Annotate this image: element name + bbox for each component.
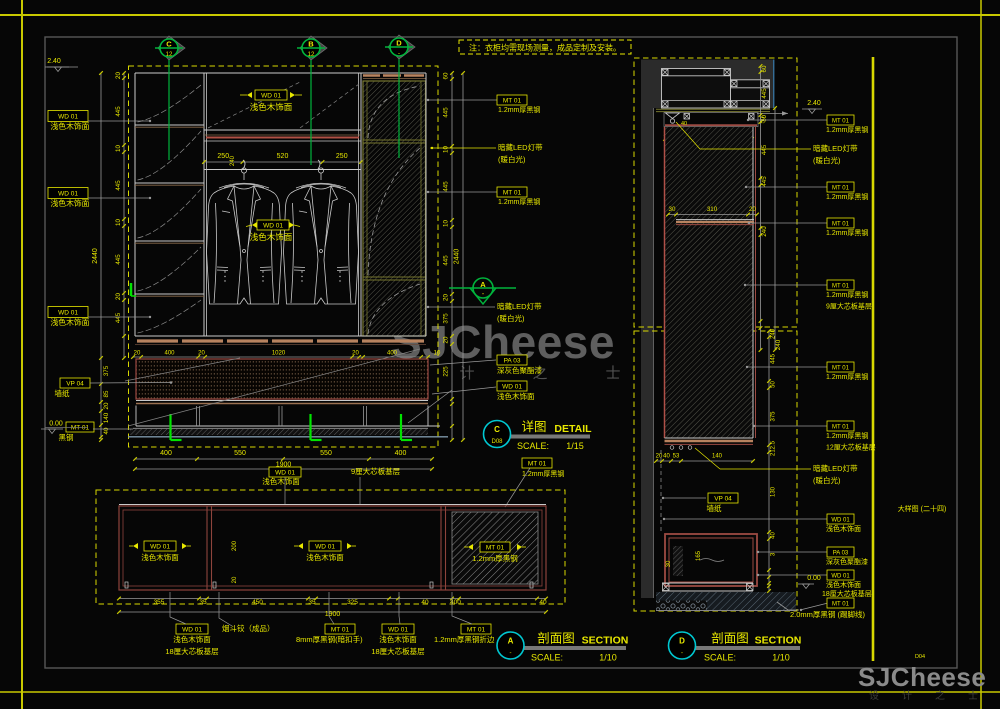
svg-text:240: 240 (761, 226, 768, 237)
svg-text:A: A (480, 280, 486, 289)
svg-text:WD 01: WD 01 (388, 626, 408, 633)
svg-text:WD 01: WD 01 (502, 383, 522, 390)
svg-text:D: D (396, 39, 402, 48)
svg-text:DETAIL: DETAIL (554, 423, 592, 435)
svg-text:MT 01: MT 01 (832, 601, 850, 607)
svg-text:1.2mm厚黑钢: 1.2mm厚黑钢 (498, 105, 540, 114)
svg-text:50: 50 (771, 381, 777, 388)
svg-text:1.2mm厚黑钢折边: 1.2mm厚黑钢折边 (434, 634, 495, 644)
svg-text:20: 20 (352, 351, 359, 357)
svg-text:400: 400 (164, 351, 175, 357)
svg-text:1/10: 1/10 (599, 653, 617, 663)
svg-text:550: 550 (234, 450, 246, 457)
svg-text:20: 20 (115, 293, 122, 300)
svg-text:1.2mm厚黑钢: 1.2mm厚黑钢 (826, 372, 868, 381)
svg-text:200: 200 (232, 540, 238, 551)
svg-text:墙纸: 墙纸 (707, 503, 722, 513)
svg-text:暗藏LED灯带: 暗藏LED灯带 (498, 142, 543, 152)
svg-text:325: 325 (347, 599, 358, 606)
svg-text:355: 355 (154, 599, 165, 606)
svg-text:1.2mm厚黑钢: 1.2mm厚黑钢 (826, 192, 868, 201)
svg-text:1.2mm厚黑钢: 1.2mm厚黑钢 (826, 228, 868, 237)
svg-text:VP 04: VP 04 (714, 495, 732, 502)
svg-text:130: 130 (771, 486, 777, 497)
svg-text:MT 01: MT 01 (832, 424, 850, 430)
svg-text:黑钢: 黑钢 (59, 432, 74, 442)
svg-text:520: 520 (277, 153, 289, 160)
svg-text:WD 01: WD 01 (263, 222, 283, 229)
svg-text:WD 01: WD 01 (261, 92, 281, 99)
svg-text:SCALE:: SCALE: (531, 653, 563, 663)
svg-text:40: 40 (421, 599, 429, 606)
svg-text:450: 450 (252, 599, 263, 606)
svg-text:-: - (681, 651, 683, 657)
svg-text:SJCheese: SJCheese (858, 662, 986, 692)
svg-text:1/15: 1/15 (566, 441, 584, 451)
svg-text:WD 01: WD 01 (150, 543, 170, 550)
svg-text:18厘大芯板基层: 18厘大芯板基层 (165, 646, 219, 656)
svg-text:18厘大芯板基层: 18厘大芯板基层 (371, 646, 425, 656)
svg-text:WD 01: WD 01 (58, 190, 78, 197)
svg-text:60: 60 (761, 65, 768, 72)
svg-text:详图: 详图 (521, 419, 546, 434)
svg-text:暗藏LED灯带: 暗藏LED灯带 (813, 463, 858, 473)
svg-text:375: 375 (443, 313, 450, 324)
svg-text:SECTION: SECTION (755, 635, 802, 647)
svg-text:212.5: 212.5 (771, 440, 777, 456)
svg-text:VP 04: VP 04 (66, 380, 84, 387)
svg-text:445: 445 (115, 180, 122, 191)
svg-text:设: 设 (869, 690, 879, 702)
svg-text:1900: 1900 (325, 611, 341, 618)
svg-text:30: 30 (669, 206, 676, 213)
svg-text:240: 240 (771, 328, 777, 339)
svg-text:310: 310 (707, 206, 718, 213)
svg-text:B: B (308, 40, 314, 49)
svg-text:20: 20 (656, 454, 663, 460)
svg-text:计: 计 (459, 365, 474, 382)
svg-text:2440: 2440 (454, 249, 461, 265)
svg-text:MT 01: MT 01 (467, 626, 486, 633)
svg-text:400: 400 (160, 450, 172, 457)
svg-text:20: 20 (232, 576, 238, 583)
svg-text:35: 35 (199, 599, 207, 606)
svg-text:SCALE:: SCALE: (704, 653, 736, 663)
svg-text:士: 士 (605, 365, 620, 382)
svg-text:12厘大芯板基层: 12厘大芯板基层 (826, 443, 876, 452)
svg-text:士: 士 (968, 689, 978, 702)
svg-text:浅色木饰面: 浅色木饰面 (497, 391, 535, 401)
svg-text:浅色木饰面: 浅色木饰面 (379, 634, 417, 644)
svg-text:计: 计 (902, 689, 912, 702)
svg-text:MT 01: MT 01 (331, 626, 350, 633)
svg-text:9厘大芯板基层: 9厘大芯板基层 (826, 302, 872, 311)
svg-text:20: 20 (103, 402, 110, 409)
svg-text:墙纸: 墙纸 (55, 388, 70, 398)
svg-text:浅色木饰面: 浅色木饰面 (250, 232, 293, 242)
svg-text:40: 40 (771, 532, 777, 539)
svg-text:浅色木饰面: 浅色木饰面 (250, 102, 293, 112)
svg-text:445: 445 (115, 254, 122, 265)
svg-text:250: 250 (336, 153, 348, 160)
svg-text:D04: D04 (915, 654, 925, 660)
svg-text:445: 445 (443, 181, 450, 192)
svg-text:WD 01: WD 01 (831, 573, 850, 579)
svg-text:1.2mm厚黑钢: 1.2mm厚黑钢 (826, 431, 868, 440)
svg-text:MT 01: MT 01 (832, 118, 850, 124)
svg-text:剖面图: 剖面图 (711, 632, 749, 646)
svg-text:40: 40 (539, 599, 547, 606)
svg-text:445: 445 (443, 107, 450, 118)
svg-text:20: 20 (198, 351, 205, 357)
svg-text:240: 240 (775, 339, 782, 350)
svg-text:剖面图: 剖面图 (537, 632, 575, 646)
svg-text:375: 375 (771, 411, 777, 422)
svg-text:暗藏LED灯带: 暗藏LED灯带 (813, 143, 858, 153)
svg-text:1020: 1020 (272, 351, 286, 357)
svg-text:之: 之 (935, 689, 945, 702)
svg-text:浅色木饰面: 浅色木饰面 (173, 634, 211, 644)
svg-text:(暖白光): (暖白光) (813, 475, 841, 485)
svg-text:PA 03: PA 03 (504, 357, 521, 364)
svg-text:浅色木饰面: 浅色木饰面 (826, 524, 861, 533)
svg-text:10: 10 (443, 146, 450, 153)
svg-text:60: 60 (443, 72, 450, 79)
svg-text:445: 445 (771, 353, 777, 364)
svg-text:445: 445 (443, 255, 450, 266)
svg-text:30: 30 (666, 560, 672, 567)
svg-text:WD 01: WD 01 (58, 113, 78, 120)
svg-text:浅色木饰面: 浅色木饰面 (51, 198, 90, 208)
svg-text:445: 445 (115, 312, 122, 323)
svg-text:85: 85 (103, 390, 110, 397)
svg-text:0.00: 0.00 (49, 421, 63, 428)
svg-text:1.2mm厚黑钢: 1.2mm厚黑钢 (498, 197, 540, 206)
svg-text:2440: 2440 (92, 248, 99, 264)
svg-text:10: 10 (434, 351, 441, 357)
svg-text:550: 550 (320, 450, 332, 457)
svg-text:MT 01: MT 01 (832, 185, 850, 191)
svg-text:140: 140 (103, 412, 110, 423)
svg-text:2.40: 2.40 (807, 100, 821, 107)
svg-text:深灰色聚酯漆: 深灰色聚酯漆 (826, 557, 868, 566)
svg-text:MT 01: MT 01 (503, 189, 522, 196)
svg-text:40: 40 (103, 427, 110, 434)
svg-text:C: C (166, 40, 172, 49)
svg-text:40: 40 (663, 454, 670, 460)
svg-text:-: - (398, 51, 400, 57)
svg-text:12: 12 (308, 52, 315, 58)
svg-text:-: - (510, 651, 512, 657)
svg-text:9厘大芯板基层: 9厘大芯板基层 (351, 466, 401, 476)
svg-text:445: 445 (761, 88, 768, 99)
svg-text:250: 250 (217, 153, 229, 160)
svg-text:0.00: 0.00 (807, 575, 821, 582)
svg-text:40: 40 (681, 121, 687, 127)
svg-text:浅色木饰面: 浅色木饰面 (51, 317, 90, 327)
svg-text:浅色木饰面: 浅色木饰面 (262, 476, 300, 486)
svg-text:445: 445 (761, 176, 768, 187)
svg-text:400: 400 (395, 450, 407, 457)
svg-text:C: C (494, 425, 500, 434)
svg-text:35: 35 (308, 599, 316, 606)
svg-text:WD 01: WD 01 (275, 469, 295, 476)
svg-text:(暖白光): (暖白光) (497, 313, 525, 323)
svg-text:20: 20 (115, 72, 122, 79)
svg-text:10: 10 (115, 145, 122, 152)
svg-text:D: D (679, 637, 685, 646)
svg-text:18厘大芯板基层: 18厘大芯板基层 (822, 589, 872, 598)
svg-text:20: 20 (749, 206, 756, 213)
svg-text:大样图 (二十四): 大样图 (二十四) (898, 504, 947, 513)
svg-text:浅色木饰面: 浅色木饰面 (141, 552, 179, 562)
svg-text:WD 01: WD 01 (831, 517, 850, 523)
svg-text:SCALE:: SCALE: (517, 441, 549, 451)
svg-text:浅色木饰面: 浅色木饰面 (826, 580, 861, 589)
svg-text:MT 01: MT 01 (832, 221, 850, 227)
svg-text:240: 240 (230, 155, 236, 166)
svg-text:20: 20 (443, 336, 450, 343)
svg-text:10: 10 (443, 220, 450, 227)
svg-text:10: 10 (115, 219, 122, 226)
svg-text:WD 01: WD 01 (315, 543, 335, 550)
svg-text:暗藏LED灯带: 暗藏LED灯带 (497, 301, 542, 311)
svg-text:WD 01: WD 01 (182, 626, 202, 633)
svg-text:D08: D08 (491, 439, 503, 445)
svg-text:1.2mm厚黑钢: 1.2mm厚黑钢 (472, 553, 517, 563)
svg-text:SECTION: SECTION (582, 635, 629, 647)
svg-text:8mm厚黑钢(暗扣手): 8mm厚黑钢(暗扣手) (296, 634, 363, 644)
svg-text:53: 53 (673, 454, 680, 460)
svg-text:深灰色聚酯漆: 深灰色聚酯漆 (497, 365, 542, 375)
svg-text:(暖白光): (暖白光) (498, 154, 526, 164)
svg-text:140: 140 (712, 454, 723, 460)
svg-text:MT 01: MT 01 (503, 97, 522, 104)
svg-text:2.40: 2.40 (47, 58, 61, 65)
svg-text:(暖白光): (暖白光) (813, 155, 841, 165)
svg-text:注：衣柜均需现场测量，成品定制及安装。: 注：衣柜均需现场测量，成品定制及安装。 (469, 43, 621, 53)
svg-text:A: A (508, 637, 514, 646)
svg-text:浅色木饰面: 浅色木饰面 (51, 121, 90, 131)
svg-text:10: 10 (761, 115, 768, 122)
svg-text:2.0mm厚黑钢 (踢脚线): 2.0mm厚黑钢 (踢脚线) (790, 609, 866, 619)
svg-text:1.2mm厚黑钢: 1.2mm厚黑钢 (826, 290, 868, 299)
svg-text:MT 01: MT 01 (832, 283, 850, 289)
svg-text:浅色木饰面: 浅色木饰面 (306, 552, 344, 562)
svg-text:1/10: 1/10 (772, 653, 790, 663)
svg-text:WD 01: WD 01 (58, 309, 78, 316)
svg-text:445: 445 (115, 106, 122, 117)
svg-text:12: 12 (166, 52, 173, 58)
svg-text:20: 20 (134, 351, 141, 357)
svg-text:PA 03: PA 03 (833, 550, 849, 556)
svg-text:MT 01: MT 01 (528, 460, 547, 467)
svg-text:1.2mm厚黑钢: 1.2mm厚黑钢 (826, 125, 868, 134)
svg-text:20: 20 (443, 294, 450, 301)
svg-text:375: 375 (103, 365, 110, 376)
svg-text:MT 01: MT 01 (486, 544, 505, 551)
svg-text:225: 225 (443, 366, 450, 377)
svg-text:445: 445 (761, 144, 768, 155)
svg-text:MT 01: MT 01 (832, 365, 850, 371)
